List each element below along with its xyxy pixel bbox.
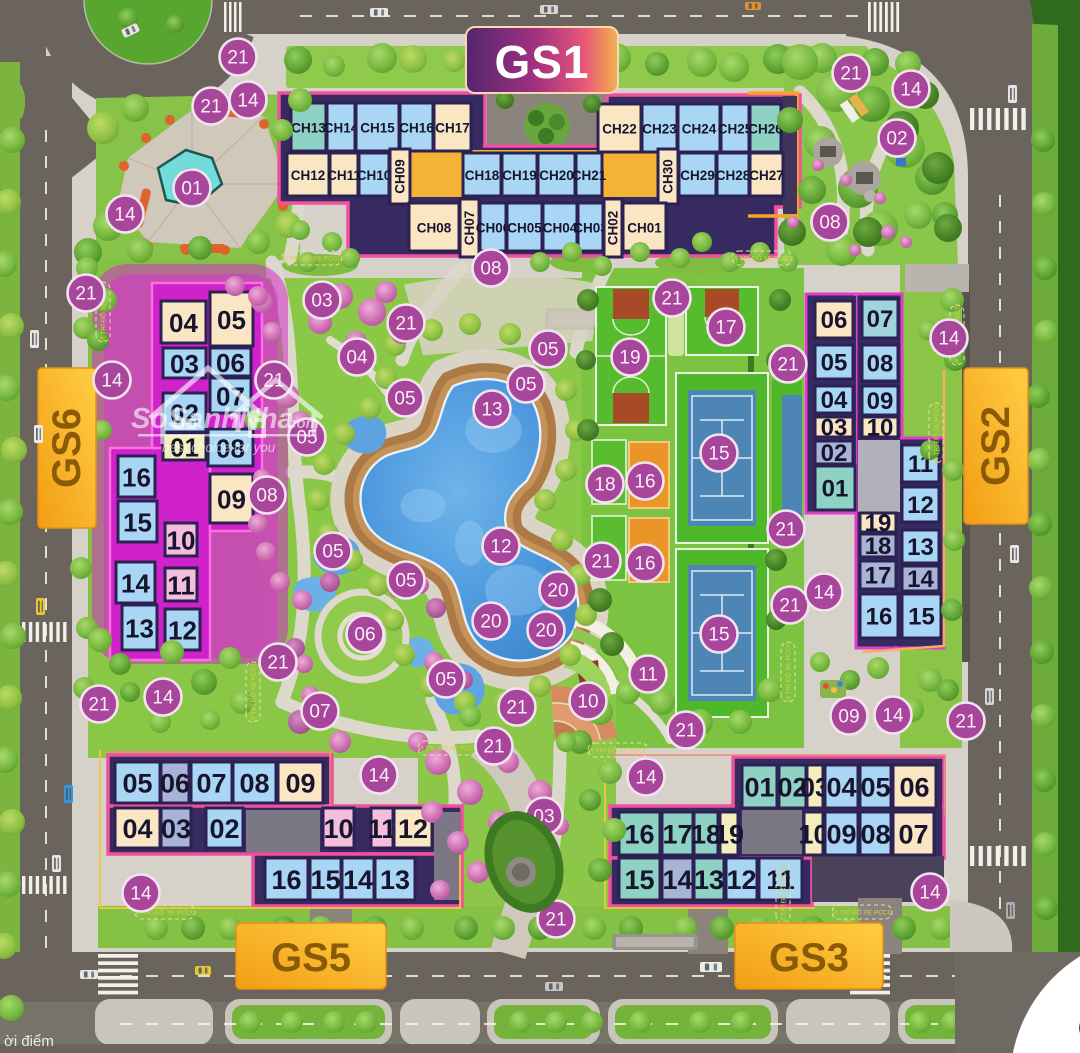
- svg-text:CH15: CH15: [360, 121, 395, 136]
- svg-text:15: 15: [908, 604, 935, 631]
- svg-text:02: 02: [821, 440, 848, 467]
- svg-text:14: 14: [101, 371, 123, 392]
- svg-text:CH12: CH12: [291, 168, 326, 183]
- svg-text:09: 09: [285, 769, 315, 799]
- svg-text:14: 14: [368, 766, 390, 787]
- svg-text:ời điểm: ời điểm: [4, 1033, 54, 1050]
- svg-text:14: 14: [662, 865, 692, 895]
- svg-text:16: 16: [634, 472, 655, 493]
- svg-text:21: 21: [840, 64, 861, 85]
- svg-text:01: 01: [744, 773, 774, 803]
- svg-text:21: 21: [75, 284, 96, 305]
- svg-text:.com: .com: [284, 415, 319, 432]
- svg-text:20: 20: [535, 621, 556, 642]
- svg-text:VỊ TRÍ ĐỖ XE PCCC: VỊ TRÍ ĐỖ XE PCCC: [282, 254, 343, 263]
- svg-text:09: 09: [826, 820, 856, 850]
- svg-text:14: 14: [938, 329, 960, 350]
- svg-text:08: 08: [256, 486, 277, 507]
- svg-text:GS2: GS2: [974, 406, 1018, 486]
- svg-text:04: 04: [826, 773, 856, 803]
- svg-text:02: 02: [886, 129, 907, 150]
- svg-text:VỊ TRÍ ĐỖ XE PCCC: VỊ TRÍ ĐỖ XE PCCC: [779, 862, 788, 923]
- svg-text:17: 17: [662, 820, 692, 850]
- svg-text:04: 04: [346, 348, 368, 369]
- svg-text:05: 05: [217, 305, 246, 335]
- svg-text:10: 10: [323, 814, 353, 844]
- svg-text:GS1: GS1: [494, 36, 589, 88]
- svg-text:21: 21: [591, 552, 612, 573]
- svg-text:21: 21: [506, 698, 527, 719]
- svg-text:CH14: CH14: [324, 121, 359, 136]
- svg-text:19: 19: [714, 820, 744, 850]
- svg-text:21: 21: [955, 712, 976, 733]
- svg-text:CH10: CH10: [357, 168, 392, 183]
- svg-text:14: 14: [121, 569, 150, 599]
- svg-text:21: 21: [200, 97, 221, 118]
- svg-text:21: 21: [777, 355, 798, 376]
- svg-text:06: 06: [354, 625, 375, 646]
- svg-text:12: 12: [490, 537, 511, 558]
- svg-text:13: 13: [481, 400, 502, 421]
- svg-text:21: 21: [779, 596, 800, 617]
- svg-text:14: 14: [900, 80, 922, 101]
- svg-text:18: 18: [865, 533, 892, 560]
- svg-text:14: 14: [882, 706, 904, 727]
- svg-text:13: 13: [694, 865, 724, 895]
- svg-text:best choice for you: best choice for you: [162, 440, 276, 455]
- svg-text:CH19: CH19: [502, 168, 537, 183]
- svg-text:15: 15: [310, 865, 340, 895]
- svg-text:21: 21: [227, 48, 248, 69]
- svg-text:15: 15: [123, 508, 152, 538]
- svg-text:05: 05: [537, 340, 558, 361]
- svg-text:14: 14: [907, 566, 934, 593]
- svg-text:VỊ TRÍ ĐỖ XE PCCC: VỊ TRÍ ĐỖ XE PCCC: [832, 908, 893, 917]
- svg-text:CH27: CH27: [749, 168, 784, 183]
- svg-text:CH16: CH16: [399, 121, 434, 136]
- svg-text:14: 14: [813, 583, 835, 604]
- svg-text:05: 05: [515, 375, 536, 396]
- svg-text:08: 08: [867, 351, 894, 378]
- svg-text:06: 06: [821, 307, 848, 334]
- svg-text:08: 08: [239, 769, 269, 799]
- svg-text:VỊ TRÍ ĐỖ XE PCCC: VỊ TRÍ ĐỖ XE PCCC: [784, 641, 793, 702]
- svg-text:21: 21: [267, 653, 288, 674]
- svg-text:CH01: CH01: [627, 221, 662, 236]
- svg-text:VỊ TRÍ ĐỖ XE PCCC: VỊ TRÍ ĐỖ XE PCCC: [932, 402, 941, 463]
- svg-text:21: 21: [395, 314, 416, 335]
- svg-text:CH30: CH30: [661, 159, 676, 194]
- svg-text:03: 03: [161, 814, 191, 844]
- svg-text:10: 10: [577, 692, 598, 713]
- svg-text:21: 21: [661, 289, 682, 310]
- svg-text:08: 08: [480, 259, 501, 280]
- svg-text:CH22: CH22: [602, 122, 637, 137]
- svg-text:CH29: CH29: [680, 168, 715, 183]
- svg-text:14: 14: [237, 91, 259, 112]
- svg-text:15: 15: [708, 444, 729, 465]
- svg-text:14: 14: [114, 205, 136, 226]
- svg-text:20: 20: [480, 612, 501, 633]
- svg-text:13: 13: [380, 865, 410, 895]
- svg-text:16: 16: [271, 865, 301, 895]
- svg-text:10: 10: [167, 526, 196, 556]
- svg-text:07: 07: [867, 306, 894, 333]
- svg-text:05: 05: [394, 389, 415, 410]
- svg-text:17: 17: [715, 318, 736, 339]
- svg-text:04: 04: [821, 387, 848, 414]
- svg-text:19: 19: [619, 348, 640, 369]
- svg-text:14: 14: [919, 883, 941, 904]
- svg-text:VỊ TRÍ ĐỖ XE PCCC: VỊ TRÍ ĐỖ XE PCCC: [732, 254, 793, 263]
- svg-text:11: 11: [638, 665, 658, 686]
- svg-text:05: 05: [395, 571, 416, 592]
- svg-text:15: 15: [624, 865, 654, 895]
- svg-text:20: 20: [547, 581, 568, 602]
- svg-text:09: 09: [838, 707, 859, 728]
- svg-text:06: 06: [216, 348, 245, 378]
- svg-text:03: 03: [821, 415, 848, 442]
- svg-text:09: 09: [217, 485, 246, 515]
- svg-text:21: 21: [545, 910, 566, 931]
- svg-text:12: 12: [907, 492, 934, 519]
- svg-text:14: 14: [635, 768, 657, 789]
- svg-text:10: 10: [867, 415, 894, 442]
- svg-text:GS3: GS3: [769, 936, 849, 980]
- svg-text:13: 13: [125, 614, 154, 644]
- svg-text:07: 07: [898, 820, 928, 850]
- svg-text:04: 04: [122, 814, 152, 844]
- svg-text:21: 21: [775, 520, 796, 541]
- svg-text:08: 08: [819, 213, 840, 234]
- svg-text:03: 03: [170, 349, 199, 379]
- svg-text:VỊ TRÍ ĐỖ XE PCCC: VỊ TRÍ ĐỖ XE PCCC: [588, 746, 649, 755]
- svg-text:13: 13: [907, 534, 934, 561]
- svg-text:CH20: CH20: [539, 168, 574, 183]
- svg-text:18: 18: [594, 475, 615, 496]
- svg-text:CH09: CH09: [393, 159, 408, 194]
- svg-text:08: 08: [860, 820, 890, 850]
- svg-text:16: 16: [122, 463, 151, 493]
- svg-text:21: 21: [88, 695, 109, 716]
- svg-text:07: 07: [196, 769, 226, 799]
- svg-text:CH28: CH28: [716, 168, 751, 183]
- svg-text:CH02: CH02: [606, 211, 621, 246]
- svg-text:CH08: CH08: [417, 221, 452, 236]
- svg-text:VỊ TRÍ ĐỖ XE PCCC: VỊ TRÍ ĐỖ XE PCCC: [418, 744, 479, 753]
- svg-text:04: 04: [169, 308, 198, 338]
- svg-text:11: 11: [167, 571, 195, 601]
- svg-text:21: 21: [483, 737, 504, 758]
- svg-text:21: 21: [675, 721, 696, 742]
- svg-text:GS5: GS5: [271, 936, 351, 980]
- svg-text:09: 09: [867, 388, 894, 415]
- svg-text:14: 14: [152, 688, 174, 709]
- svg-text:05: 05: [122, 769, 152, 799]
- svg-text:CH17: CH17: [435, 121, 470, 136]
- svg-text:05: 05: [322, 542, 343, 563]
- svg-text:CH06: CH06: [476, 221, 511, 236]
- svg-text:01: 01: [822, 476, 849, 503]
- svg-text:05: 05: [435, 670, 456, 691]
- svg-text:CH13: CH13: [291, 121, 326, 136]
- svg-text:17: 17: [865, 563, 892, 590]
- svg-text:01: 01: [181, 179, 202, 200]
- svg-text:06: 06: [160, 769, 190, 799]
- svg-text:14: 14: [130, 884, 152, 905]
- svg-text:06: 06: [899, 773, 929, 803]
- svg-text:16: 16: [634, 554, 655, 575]
- svg-text:CH18: CH18: [465, 168, 500, 183]
- svg-text:15: 15: [708, 625, 729, 646]
- svg-text:CH24: CH24: [682, 122, 717, 137]
- svg-text:02: 02: [209, 814, 239, 844]
- svg-text:GS6: GS6: [45, 408, 89, 488]
- svg-text:CH23: CH23: [642, 122, 677, 137]
- svg-text:05: 05: [821, 350, 848, 377]
- svg-text:14: 14: [343, 865, 373, 895]
- svg-text:05: 05: [860, 773, 890, 803]
- svg-text:CH05: CH05: [507, 221, 542, 236]
- svg-text:07: 07: [309, 702, 330, 723]
- svg-text:16: 16: [624, 820, 654, 850]
- svg-text:VỊ TRÍ ĐỖ XE PCCC: VỊ TRÍ ĐỖ XE PCCC: [249, 661, 258, 722]
- svg-text:12: 12: [726, 865, 756, 895]
- svg-text:SoSanhNha: SoSanhNha: [131, 403, 294, 435]
- svg-text:11: 11: [368, 814, 397, 844]
- svg-text:CH21: CH21: [572, 168, 607, 183]
- svg-text:03: 03: [311, 291, 332, 312]
- svg-text:16: 16: [866, 604, 893, 631]
